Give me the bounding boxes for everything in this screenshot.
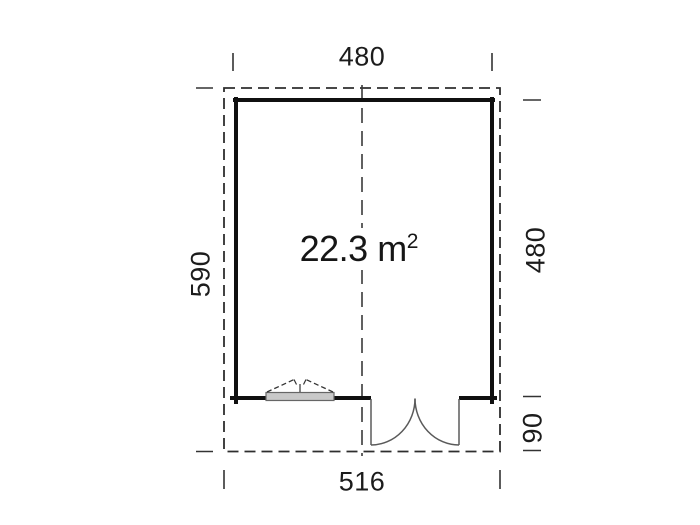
door-symbol xyxy=(371,399,459,446)
floor-plan: 480 590 480 90 516 22.3 m2 xyxy=(0,0,700,525)
dimension-bottom-width: 516 xyxy=(339,469,386,496)
window-apex-notch-right xyxy=(304,380,307,385)
dimension-top-width: 480 xyxy=(339,44,386,71)
dimension-left-height: 590 xyxy=(188,251,215,298)
window-opening-dash-right xyxy=(306,380,333,393)
area-unit-exponent: 2 xyxy=(407,230,419,253)
door-swing-arc-right xyxy=(415,399,459,446)
dimension-right-lower-height: 90 xyxy=(520,412,547,443)
window-opening-dash-left xyxy=(267,380,294,393)
window-symbol xyxy=(266,380,334,401)
dimension-ticks xyxy=(196,53,541,489)
window-sill xyxy=(266,393,334,401)
window-apex-notch-left xyxy=(294,380,297,385)
area-value: 22.3 m xyxy=(300,228,407,269)
door-swing-arc-left xyxy=(371,399,415,446)
dimension-right-upper-height: 480 xyxy=(523,227,550,274)
area-label: 22.3 m2 xyxy=(294,228,425,270)
